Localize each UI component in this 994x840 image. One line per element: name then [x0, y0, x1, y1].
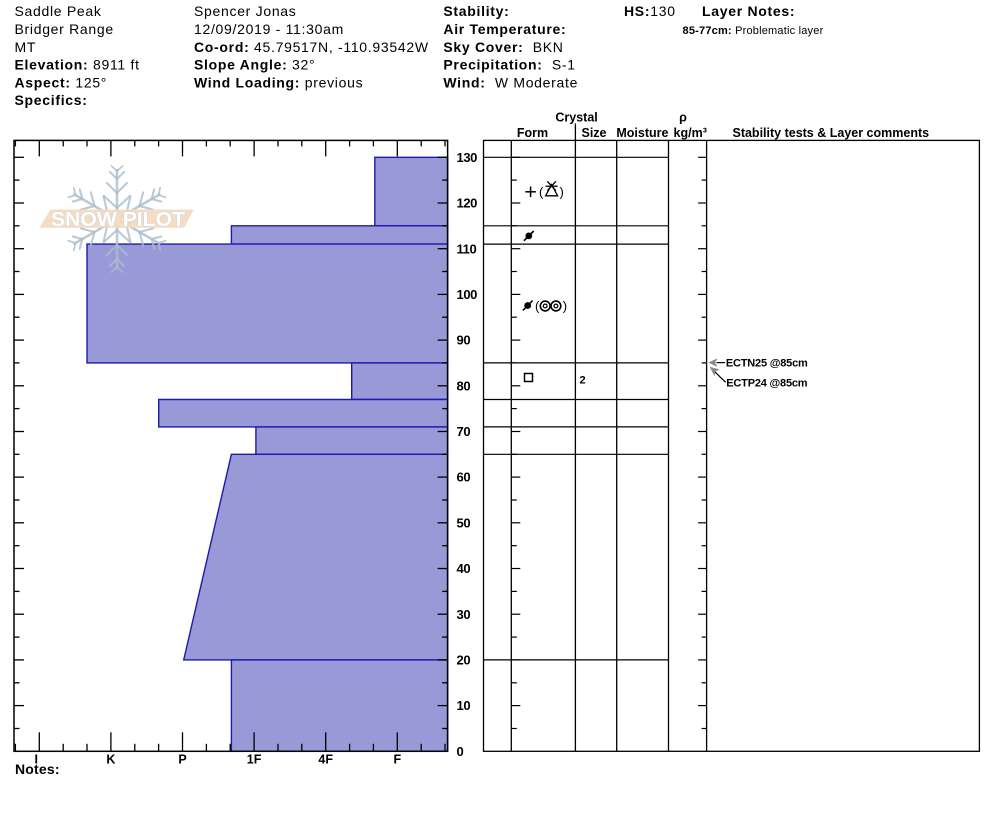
- svg-text:ECTP24 @85cm: ECTP24 @85cm: [726, 378, 808, 390]
- svg-text:2: 2: [580, 375, 586, 387]
- svg-text:40: 40: [457, 561, 471, 576]
- svg-text:HS:130: HS:130: [624, 3, 676, 19]
- svg-text:70: 70: [457, 424, 471, 439]
- svg-text:Moisture: Moisture: [616, 126, 668, 140]
- svg-text:Sky Cover: BKN: Sky Cover: BKN: [443, 39, 563, 55]
- svg-text:Stability:: Stability:: [443, 3, 509, 19]
- svg-text:MT: MT: [15, 39, 37, 55]
- svg-text:): ): [560, 185, 564, 200]
- svg-text:Bridger Range: Bridger Range: [15, 21, 114, 37]
- svg-text:(: (: [535, 299, 540, 314]
- svg-text:Aspect: 125°: Aspect: 125°: [15, 74, 108, 90]
- svg-text:Air Temperature:: Air Temperature:: [443, 21, 566, 37]
- svg-text:100: 100: [457, 287, 478, 302]
- svg-text:130: 130: [457, 150, 478, 165]
- svg-text:ECTN25 @85cm: ECTN25 @85cm: [726, 357, 808, 369]
- svg-text:1F: 1F: [247, 753, 262, 767]
- svg-text:Size: Size: [581, 126, 606, 140]
- svg-text:Precipitation: S-1: Precipitation: S-1: [443, 57, 575, 73]
- svg-text:20: 20: [457, 653, 471, 668]
- svg-text:Layer Notes:: Layer Notes:: [702, 3, 795, 19]
- svg-text:Spencer Jonas: Spencer Jonas: [194, 3, 297, 19]
- svg-text:80: 80: [457, 378, 471, 393]
- svg-text:Form: Form: [517, 126, 548, 140]
- svg-text:60: 60: [457, 470, 471, 485]
- svg-text:): ): [563, 299, 567, 314]
- svg-text:K: K: [106, 753, 115, 767]
- svg-text:4F: 4F: [318, 753, 333, 767]
- svg-text:30: 30: [457, 607, 471, 622]
- svg-text:Crystal: Crystal: [555, 111, 597, 125]
- svg-text:(: (: [539, 185, 544, 200]
- svg-text:Slope Angle: 32°: Slope Angle: 32°: [194, 57, 315, 73]
- svg-text:F: F: [393, 753, 401, 767]
- svg-text:kg/m³: kg/m³: [674, 126, 707, 140]
- svg-text:Specifics:: Specifics:: [15, 92, 88, 108]
- svg-text:50: 50: [457, 515, 471, 530]
- svg-text:0: 0: [457, 744, 464, 759]
- svg-text:Wind: W Moderate: Wind: W Moderate: [443, 74, 578, 90]
- svg-text:ρ: ρ: [679, 111, 687, 125]
- svg-text:10: 10: [457, 698, 471, 713]
- svg-text:Notes:: Notes:: [15, 761, 60, 777]
- svg-text:110: 110: [457, 241, 477, 256]
- svg-text:90: 90: [457, 333, 471, 348]
- svg-text:Saddle Peak: Saddle Peak: [15, 3, 102, 19]
- svg-text:Wind Loading: previous: Wind Loading: previous: [194, 74, 363, 90]
- svg-text:SNOW PILOT: SNOW PILOT: [51, 209, 185, 231]
- svg-text:Stability tests & Layer commen: Stability tests & Layer comments: [732, 126, 929, 140]
- svg-text:Elevation: 8911 ft: Elevation: 8911 ft: [15, 57, 140, 73]
- svg-text:12/09/2019 - 11:30am: 12/09/2019 - 11:30am: [194, 21, 344, 37]
- svg-text:P: P: [178, 753, 186, 767]
- svg-text:Co-ord: 45.79517N, -110.93542W: Co-ord: 45.79517N, -110.93542W: [194, 39, 429, 55]
- svg-text:120: 120: [457, 196, 478, 211]
- svg-text:85-77cm: Problematic layer: 85-77cm: Problematic layer: [683, 25, 824, 37]
